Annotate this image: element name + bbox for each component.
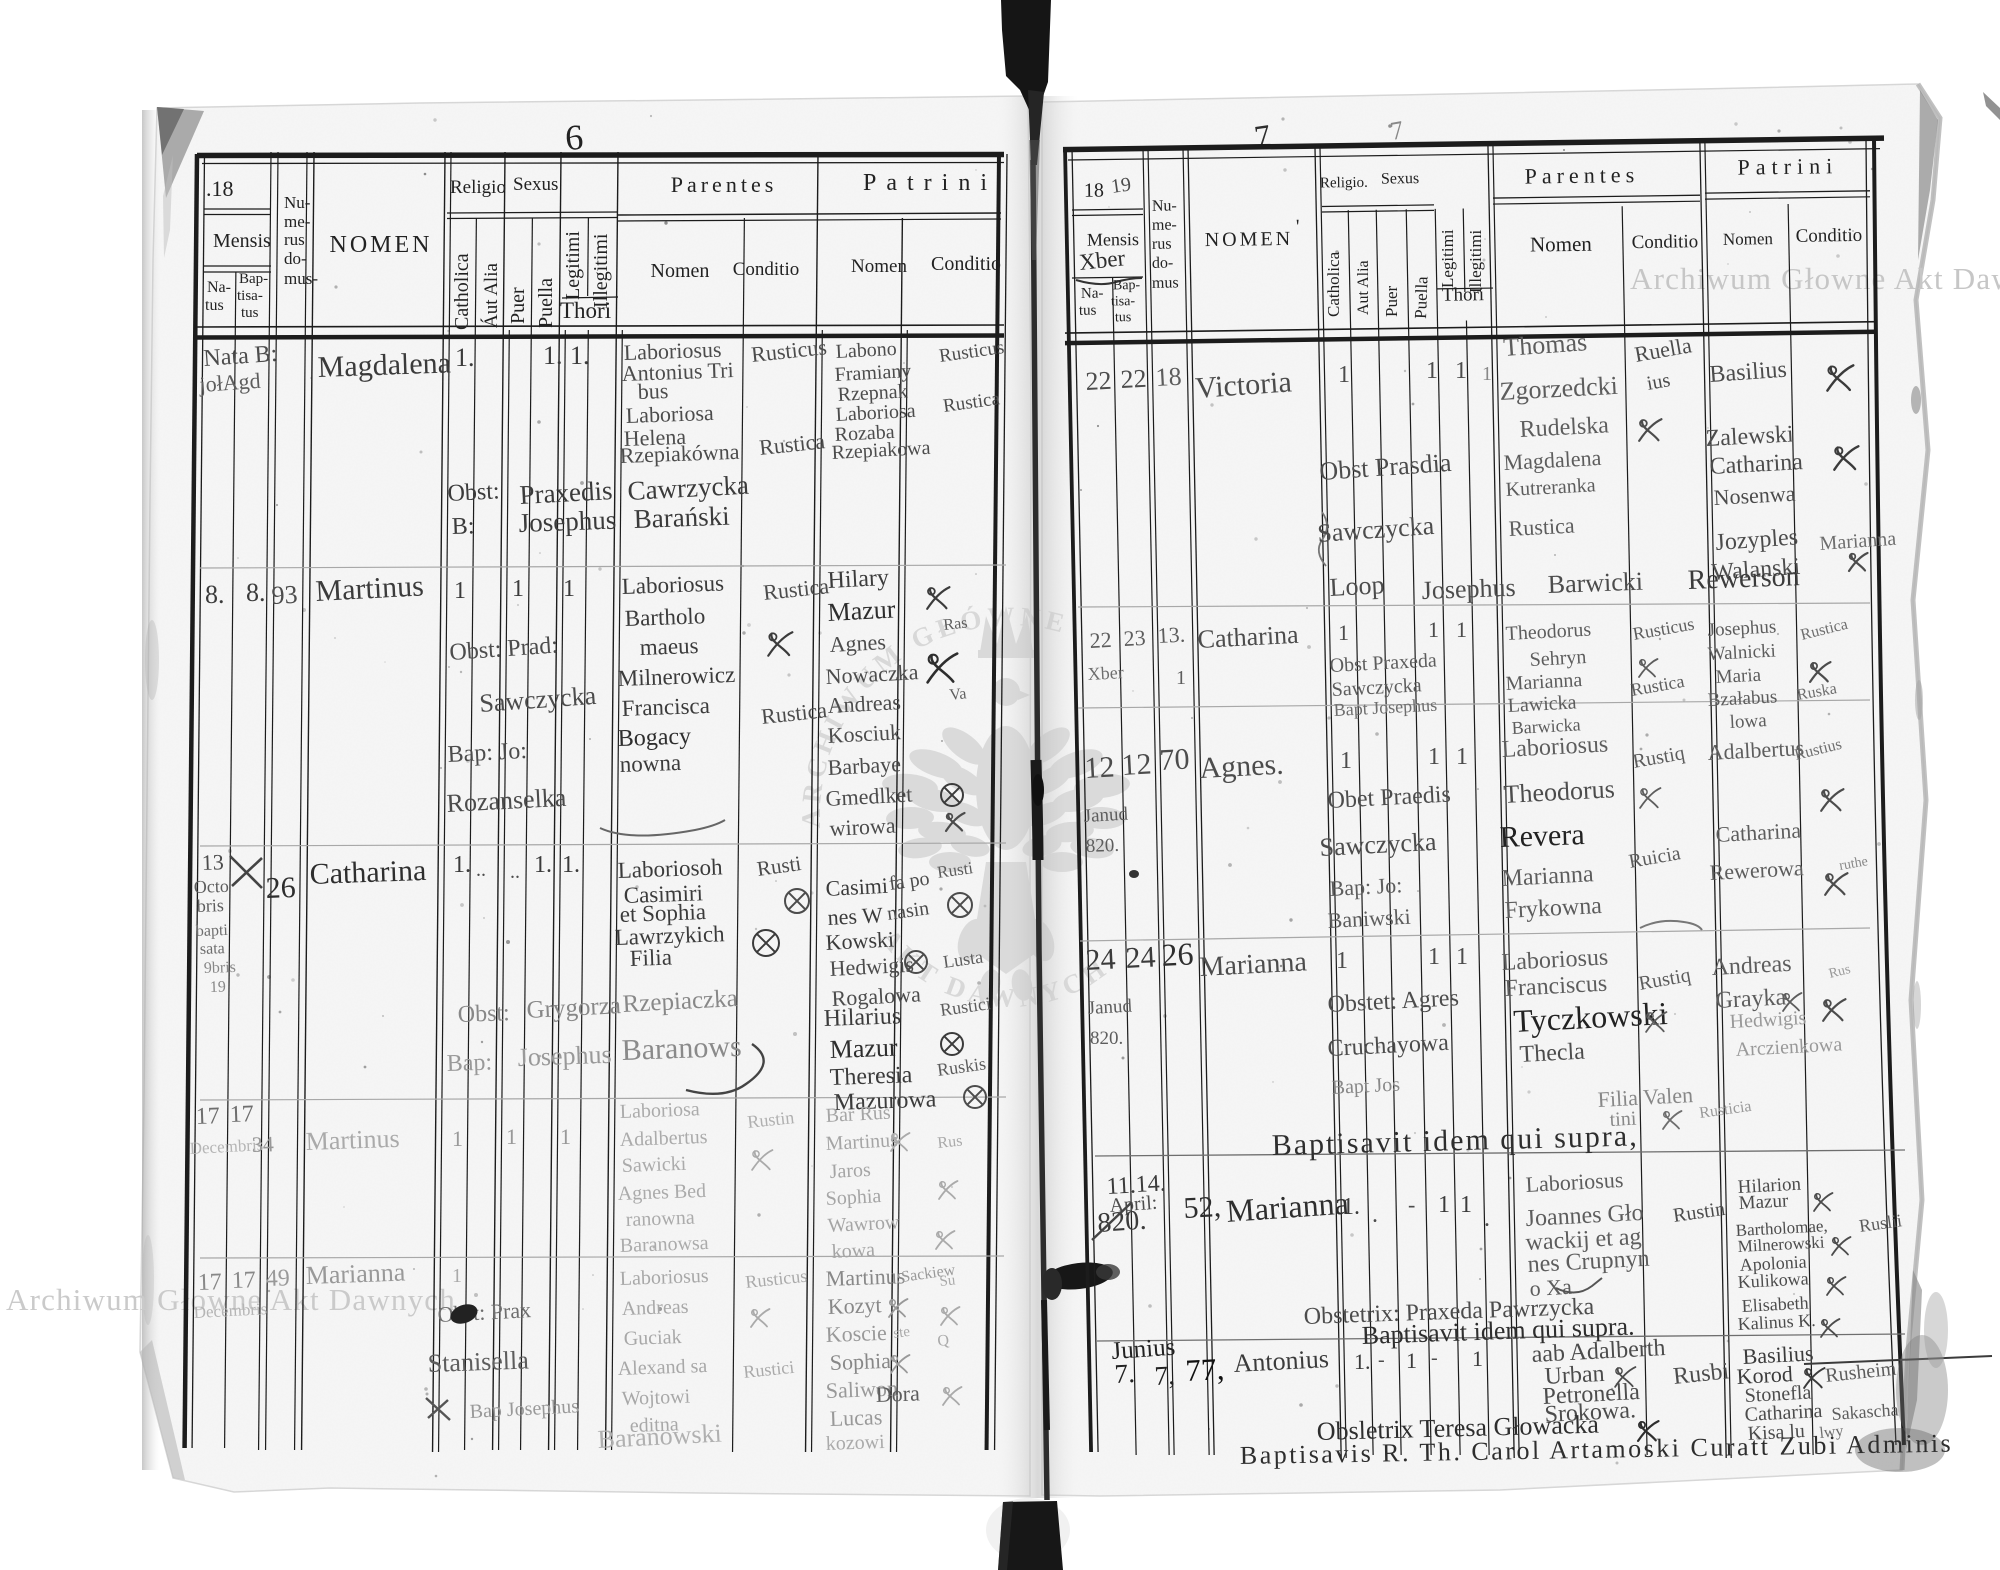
svg-text:9bris: 9bris bbox=[204, 959, 237, 977]
svg-text:1.: 1. bbox=[455, 343, 475, 372]
svg-text:Rewerson: Rewerson bbox=[1687, 561, 1800, 596]
svg-text:Nomen: Nomen bbox=[1530, 232, 1593, 257]
svg-text:kozowi: kozowi bbox=[825, 1431, 885, 1455]
svg-text:Marianna: Marianna bbox=[1501, 861, 1595, 892]
svg-text:Labono: Labono bbox=[835, 338, 897, 363]
svg-text:70: 70 bbox=[1159, 742, 1191, 777]
svg-text:13: 13 bbox=[201, 849, 224, 875]
svg-text:Theodorus: Theodorus bbox=[1505, 619, 1592, 645]
svg-text:Wawrow: Wawrow bbox=[827, 1211, 900, 1237]
svg-text:Andreas: Andreas bbox=[621, 1296, 689, 1320]
svg-text:Áut Alia: Áut Alia bbox=[480, 263, 502, 328]
svg-text:bus: bus bbox=[637, 378, 668, 404]
svg-text:26: 26 bbox=[265, 871, 296, 905]
svg-text:Conditio: Conditio bbox=[931, 253, 1001, 275]
svg-text:Barbaye: Barbaye bbox=[827, 751, 902, 780]
svg-text:1: 1 bbox=[452, 1126, 463, 1151]
svg-text:Catholica: Catholica bbox=[451, 253, 473, 330]
svg-text:tisa-: tisa- bbox=[1111, 294, 1136, 309]
svg-text:1: 1 bbox=[1482, 363, 1492, 385]
svg-text:24: 24 bbox=[1085, 942, 1117, 977]
svg-text:1: 1 bbox=[1338, 620, 1349, 645]
svg-text:Casimi: Casimi bbox=[825, 873, 889, 901]
svg-text:Bogacy: Bogacy bbox=[617, 723, 691, 752]
svg-text:Gmedlket: Gmedlket bbox=[825, 781, 913, 811]
svg-text:13.: 13. bbox=[1157, 622, 1186, 648]
svg-text:Franciscus: Franciscus bbox=[1504, 971, 1608, 1002]
svg-text:12: 12 bbox=[1121, 747, 1153, 782]
svg-text:NOMEN: NOMEN bbox=[1205, 228, 1294, 251]
svg-text:Kalinus K.: Kalinus K. bbox=[1737, 1310, 1816, 1334]
svg-text:Nowaczka: Nowaczka bbox=[825, 659, 919, 689]
svg-text:Religio: Religio bbox=[450, 177, 506, 198]
svg-text:Conditio: Conditio bbox=[1632, 231, 1699, 253]
svg-text:Josephus: Josephus bbox=[1421, 573, 1516, 605]
svg-text:Patrini: Patrini bbox=[863, 170, 997, 196]
svg-text:1: 1 bbox=[1472, 1346, 1483, 1371]
svg-text:Legitimi: Legitimi bbox=[562, 231, 584, 300]
svg-text:23: 23 bbox=[1123, 625, 1146, 651]
svg-text:1: 1 bbox=[1428, 944, 1440, 970]
svg-text:Jaros: Jaros bbox=[829, 1159, 871, 1183]
svg-text:Josephus: Josephus bbox=[518, 505, 617, 538]
svg-text:Rus: Rus bbox=[937, 1132, 964, 1152]
svg-text:.: . bbox=[1484, 1206, 1490, 1232]
svg-text:Puer: Puer bbox=[1382, 286, 1401, 318]
svg-text:Baniwski: Baniwski bbox=[1327, 904, 1411, 933]
svg-text:Mazur: Mazur bbox=[827, 594, 897, 627]
svg-text:Bar Rus: Bar Rus bbox=[825, 1102, 891, 1127]
svg-text:-: - bbox=[1378, 1349, 1385, 1371]
svg-text:nowna: nowna bbox=[619, 750, 681, 777]
svg-text:Revera: Revera bbox=[1499, 818, 1585, 854]
svg-text:Rzepiakówna: Rzepiakówna bbox=[619, 439, 740, 468]
svg-text:1: 1 bbox=[1338, 362, 1350, 388]
svg-text:Ras: Ras bbox=[943, 615, 969, 634]
svg-text:Victoria: Victoria bbox=[1194, 365, 1293, 405]
svg-text:bapti: bapti bbox=[196, 922, 229, 940]
svg-text:8.: 8. bbox=[246, 578, 266, 607]
svg-text:Rudelska: Rudelska bbox=[1519, 412, 1610, 443]
svg-text:tus: tus bbox=[241, 305, 259, 321]
svg-text:Filia Valen: Filia Valen bbox=[1597, 1082, 1694, 1112]
svg-text:1: 1 bbox=[1406, 1348, 1417, 1373]
svg-text:Nosenwa: Nosenwa bbox=[1713, 481, 1796, 510]
svg-text:17: 17 bbox=[229, 1101, 254, 1128]
svg-text:Aut Alia: Aut Alia bbox=[1355, 260, 1372, 315]
svg-text:jołAgd: jołAgd bbox=[198, 368, 262, 397]
svg-text:1: 1 bbox=[1456, 617, 1467, 642]
svg-text:Agnes.: Agnes. bbox=[1199, 748, 1285, 785]
svg-text:Josephus: Josephus bbox=[1707, 616, 1777, 641]
svg-text:Stanisella: Stanisella bbox=[427, 1345, 530, 1378]
svg-text:Martinus: Martinus bbox=[305, 1124, 400, 1156]
svg-text:Marianna: Marianna bbox=[305, 1258, 406, 1290]
svg-text:do-: do- bbox=[1152, 255, 1174, 272]
svg-text:Va: Va bbox=[949, 685, 968, 704]
svg-text:maeus: maeus bbox=[639, 633, 699, 660]
svg-text:Parentes: Parentes bbox=[671, 172, 778, 197]
svg-text:1: 1 bbox=[1460, 1192, 1472, 1218]
svg-text:1: 1 bbox=[1340, 748, 1352, 774]
svg-text:1: 1 bbox=[1455, 358, 1467, 384]
svg-text:editna: editna bbox=[629, 1413, 679, 1437]
svg-text:Thecla: Thecla bbox=[1519, 1039, 1586, 1068]
svg-text:Bzałabus: Bzałabus bbox=[1707, 686, 1778, 711]
svg-text:12: 12 bbox=[1084, 750, 1116, 785]
svg-text:820.: 820. bbox=[1085, 835, 1119, 857]
svg-text:Theresia: Theresia bbox=[829, 1062, 913, 1091]
svg-text:Bapt Jos: Bapt Jos bbox=[1331, 1073, 1401, 1099]
svg-text:Mazur: Mazur bbox=[829, 1033, 898, 1064]
svg-text:Laboriosus: Laboriosus bbox=[1525, 1167, 1624, 1197]
svg-text:B:: B: bbox=[451, 513, 475, 540]
svg-text:Na-: Na- bbox=[207, 279, 231, 296]
svg-text:Xber: Xber bbox=[1078, 245, 1127, 275]
svg-text:820.: 820. bbox=[1090, 1028, 1123, 1049]
svg-text:Parentes: Parentes bbox=[1524, 162, 1639, 189]
svg-text:do-: do- bbox=[284, 249, 307, 268]
svg-text:Bap:: Bap: bbox=[446, 1049, 492, 1077]
svg-text:Sawicki: Sawicki bbox=[621, 1153, 687, 1177]
svg-text:Kowski: Kowski bbox=[825, 926, 895, 955]
svg-text:Zgorzedcki: Zgorzedcki bbox=[1499, 371, 1619, 406]
svg-text:Hedwigis: Hedwigis bbox=[829, 952, 915, 981]
svg-text:Barański: Barański bbox=[633, 501, 730, 534]
svg-text:19: 19 bbox=[210, 978, 227, 996]
svg-text:Patrini: Patrini bbox=[1737, 153, 1838, 179]
svg-text:Magdalena: Magdalena bbox=[317, 346, 451, 384]
svg-text:Catharina: Catharina bbox=[309, 854, 427, 891]
svg-text:ranowna: ranowna bbox=[625, 1207, 695, 1231]
svg-text:1.: 1. bbox=[453, 852, 471, 878]
svg-text:Catharina: Catharina bbox=[1715, 818, 1802, 847]
svg-text:lowa: lowa bbox=[1729, 710, 1768, 733]
svg-text:Milnerowicz: Milnerowicz bbox=[617, 662, 735, 691]
svg-text:Agnes: Agnes bbox=[829, 629, 886, 657]
svg-text:1: 1 bbox=[1456, 944, 1468, 970]
svg-text:7,: 7, bbox=[1154, 1360, 1176, 1391]
svg-text:1: 1 bbox=[1428, 744, 1440, 770]
svg-text:26: 26 bbox=[1160, 935, 1194, 973]
svg-text:Kosciuk: Kosciuk bbox=[827, 719, 902, 748]
svg-text:Rustica: Rustica bbox=[1508, 513, 1575, 541]
svg-text:Nomen: Nomen bbox=[851, 256, 907, 277]
svg-text:Mazur: Mazur bbox=[1738, 1190, 1789, 1214]
svg-text:Guciak: Guciak bbox=[623, 1326, 681, 1350]
svg-text:Obst: Prax: Obst: Prax bbox=[437, 1297, 532, 1327]
svg-text:19: 19 bbox=[1110, 173, 1133, 198]
svg-text:Obst:: Obst: bbox=[457, 1000, 510, 1028]
svg-text:Baranowsa: Baranowsa bbox=[619, 1232, 709, 1257]
svg-text:1.: 1. bbox=[1342, 1194, 1360, 1220]
svg-text:tisa-: tisa- bbox=[237, 288, 263, 304]
svg-text:1: 1 bbox=[1336, 948, 1348, 974]
svg-text:Adalbertus: Adalbertus bbox=[1707, 735, 1805, 765]
svg-text:1.: 1. bbox=[570, 341, 590, 370]
svg-text:Walnicki: Walnicki bbox=[1707, 640, 1776, 665]
svg-text:Nu-: Nu- bbox=[284, 193, 311, 212]
svg-text:1: 1 bbox=[512, 576, 524, 602]
svg-text:Grygorza: Grygorza bbox=[526, 992, 622, 1024]
svg-text:Marianna: Marianna bbox=[1199, 946, 1308, 983]
svg-text:Illegitimi: Illegitimi bbox=[590, 233, 612, 308]
svg-text:ste: ste bbox=[892, 1324, 911, 1342]
svg-text:wirowa: wirowa bbox=[829, 813, 896, 841]
svg-text:Loop: Loop bbox=[1329, 570, 1385, 602]
svg-text:Janud: Janud bbox=[1087, 996, 1133, 1019]
svg-text:24: 24 bbox=[1125, 940, 1157, 975]
svg-text:Catholica: Catholica bbox=[1324, 251, 1343, 317]
svg-text:Kutreranka: Kutreranka bbox=[1505, 474, 1596, 501]
svg-text:1: 1 bbox=[1428, 617, 1439, 642]
svg-text:ius: ius bbox=[1645, 369, 1672, 395]
svg-text:Sexus: Sexus bbox=[1381, 170, 1419, 188]
svg-text:1: 1 bbox=[1438, 1192, 1450, 1218]
svg-text:Nata B:: Nata B: bbox=[203, 341, 279, 372]
svg-text:Bartholo: Bartholo bbox=[624, 603, 705, 631]
svg-text:6: 6 bbox=[564, 117, 585, 158]
svg-text:Archiwum Głowne Akt Dawnych: Archiwum Głowne Akt Dawnych bbox=[1630, 261, 2000, 296]
svg-text:Laboriosus: Laboriosus bbox=[621, 570, 724, 599]
svg-text:rus: rus bbox=[1152, 236, 1172, 253]
svg-text:34: 34 bbox=[251, 1131, 274, 1157]
svg-text:.: . bbox=[1372, 1202, 1378, 1228]
svg-text:Conditio: Conditio bbox=[733, 259, 800, 280]
svg-text:Nu-: Nu- bbox=[1152, 198, 1177, 215]
svg-text:Wojtowi: Wojtowi bbox=[621, 1386, 691, 1410]
svg-text:1.: 1. bbox=[562, 852, 580, 878]
svg-text:1: 1 bbox=[506, 1124, 517, 1149]
svg-text:..: .. bbox=[476, 859, 486, 881]
svg-text:Janud: Janud bbox=[1083, 804, 1129, 827]
svg-text:Bap-: Bap- bbox=[239, 271, 268, 287]
svg-text:kowa: kowa bbox=[831, 1239, 876, 1263]
svg-text:Thori: Thori bbox=[560, 298, 611, 323]
svg-text:7.: 7. bbox=[1114, 1358, 1136, 1389]
svg-text:22: 22 bbox=[1120, 364, 1147, 394]
svg-text:Baranows: Baranows bbox=[621, 1030, 742, 1067]
svg-text:Filia: Filia bbox=[629, 945, 672, 971]
svg-text:Sophia: Sophia bbox=[825, 1185, 882, 1210]
svg-text:1.: 1. bbox=[543, 341, 563, 370]
svg-text:Thori: Thori bbox=[1442, 284, 1485, 306]
svg-text:Barwicki: Barwicki bbox=[1547, 567, 1643, 599]
svg-text:1: 1 bbox=[560, 1124, 571, 1149]
svg-text:Decembris: Decembris bbox=[193, 1299, 268, 1322]
svg-text:8.: 8. bbox=[205, 580, 225, 609]
svg-text:Magdalena: Magdalena bbox=[1503, 445, 1602, 475]
svg-text:18: 18 bbox=[1155, 362, 1182, 392]
svg-text:Agnes Bed: Agnes Bed bbox=[617, 1180, 706, 1205]
svg-text:mus-: mus- bbox=[284, 269, 318, 288]
svg-text:Puer: Puer bbox=[507, 287, 529, 324]
svg-text:Obst:: Obst: bbox=[447, 478, 500, 507]
svg-text:Lucas: Lucas bbox=[829, 1404, 882, 1431]
svg-text:Legitimi: Legitimi bbox=[1438, 229, 1457, 288]
svg-text:52,: 52, bbox=[1183, 1190, 1222, 1225]
svg-text:Q: Q bbox=[937, 1332, 951, 1350]
svg-text:1: 1 bbox=[454, 578, 466, 604]
svg-text:1.: 1. bbox=[534, 852, 552, 878]
svg-text:me-: me- bbox=[284, 212, 311, 231]
svg-text:1.: 1. bbox=[1354, 1349, 1371, 1374]
svg-text:Catharina: Catharina bbox=[1709, 449, 1804, 480]
svg-text:Bap: Jo:: Bap: Jo: bbox=[447, 738, 528, 768]
svg-text:tus: tus bbox=[205, 297, 224, 314]
svg-text:Religio.: Religio. bbox=[1320, 175, 1368, 192]
svg-text:Nomen: Nomen bbox=[1723, 229, 1774, 249]
svg-text:Andreas: Andreas bbox=[1711, 951, 1792, 981]
svg-text:rus: rus bbox=[284, 230, 305, 249]
svg-text:Francisca: Francisca bbox=[621, 693, 710, 721]
svg-text:Na-: Na- bbox=[1081, 286, 1104, 302]
svg-text:tus: tus bbox=[1115, 310, 1132, 325]
svg-text:Su: Su bbox=[939, 1272, 957, 1290]
svg-text:sata: sata bbox=[200, 940, 225, 958]
svg-text:Theodorus: Theodorus bbox=[1503, 774, 1616, 809]
svg-text:1: 1 bbox=[1176, 667, 1186, 689]
svg-text:Octo: Octo bbox=[193, 876, 229, 897]
svg-text:Dora: Dora bbox=[875, 1380, 920, 1407]
svg-text:-: - bbox=[1431, 1347, 1438, 1369]
svg-text:Sehryn: Sehryn bbox=[1529, 646, 1587, 671]
svg-text:Sexus: Sexus bbox=[513, 174, 558, 195]
svg-text:1: 1 bbox=[452, 1265, 462, 1287]
svg-text:18: 18 bbox=[1084, 180, 1104, 202]
svg-text:Hilarius: Hilarius bbox=[823, 1003, 901, 1032]
svg-text:17: 17 bbox=[197, 1269, 222, 1296]
svg-text:Xber: Xber bbox=[1087, 662, 1124, 684]
svg-text:820.: 820. bbox=[1096, 1205, 1147, 1239]
svg-text:17: 17 bbox=[231, 1267, 256, 1294]
svg-text:Alexand sa: Alexand sa bbox=[617, 1355, 707, 1380]
svg-text:Catharina: Catharina bbox=[1197, 620, 1300, 654]
svg-text:77,: 77, bbox=[1185, 1351, 1226, 1388]
svg-text:Bap: Jo:: Bap: Jo: bbox=[1329, 872, 1403, 901]
svg-text:tus: tus bbox=[1079, 303, 1097, 319]
svg-text:22: 22 bbox=[1089, 627, 1112, 653]
svg-text:Josephus: Josephus bbox=[517, 1040, 612, 1072]
svg-text:Puella: Puella bbox=[535, 278, 557, 328]
svg-text:Adalbertus: Adalbertus bbox=[619, 1126, 708, 1151]
svg-text:1: 1 bbox=[1456, 744, 1468, 770]
svg-text:.18: .18 bbox=[206, 176, 234, 201]
svg-text:Kozyt: Kozyt bbox=[827, 1292, 882, 1319]
svg-text:': ' bbox=[1296, 216, 1300, 238]
svg-text:nes W: nes W bbox=[827, 902, 884, 930]
svg-text:Hedwigis: Hedwigis bbox=[1729, 1007, 1807, 1033]
svg-text:93: 93 bbox=[271, 580, 298, 610]
svg-text:Antonius: Antonius bbox=[1233, 1344, 1330, 1378]
svg-text:Cawrzycka: Cawrzycka bbox=[627, 470, 750, 506]
svg-text:Hilary: Hilary bbox=[827, 565, 890, 594]
svg-text:Basilius: Basilius bbox=[1709, 357, 1788, 388]
svg-text:Sophia: Sophia bbox=[829, 1348, 891, 1375]
svg-text:Martinus: Martinus bbox=[315, 569, 425, 608]
svg-text:17: 17 bbox=[195, 1103, 220, 1130]
svg-text:22: 22 bbox=[1085, 366, 1112, 396]
svg-text:Andreas: Andreas bbox=[827, 689, 902, 718]
svg-text:Mensis: Mensis bbox=[213, 230, 271, 252]
svg-text:1: 1 bbox=[563, 576, 575, 602]
svg-text:Maria: Maria bbox=[1715, 665, 1762, 688]
svg-text:Laboriosus: Laboriosus bbox=[619, 1265, 709, 1290]
svg-text:Koscie: Koscie bbox=[825, 1320, 887, 1347]
svg-text:Puella: Puella bbox=[1411, 276, 1431, 320]
svg-text:Rewerowa: Rewerowa bbox=[1709, 855, 1804, 885]
svg-text:Martinus: Martinus bbox=[825, 1263, 905, 1291]
svg-text:bris: bris bbox=[196, 895, 224, 916]
svg-text:Kulikowa: Kulikowa bbox=[1737, 1268, 1809, 1292]
svg-text:..: .. bbox=[510, 861, 520, 883]
svg-text:Laboriosa: Laboriosa bbox=[619, 1098, 700, 1123]
svg-text:me-: me- bbox=[1152, 217, 1177, 234]
svg-text:1: 1 bbox=[1426, 358, 1438, 384]
svg-text:Frykowna: Frykowna bbox=[1504, 893, 1603, 924]
svg-text:49: 49 bbox=[265, 1265, 290, 1292]
svg-text:Nomen: Nomen bbox=[651, 260, 710, 282]
svg-text:Sawczycka: Sawczycka bbox=[1319, 827, 1438, 862]
svg-text:Zalewski: Zalewski bbox=[1705, 421, 1795, 452]
svg-text:Lawicka: Lawicka bbox=[1507, 691, 1577, 717]
svg-text:mus: mus bbox=[1152, 274, 1179, 291]
svg-text:Bap-: Bap- bbox=[1113, 278, 1141, 293]
svg-text:Conditio: Conditio bbox=[1796, 225, 1863, 247]
svg-text:-: - bbox=[1408, 1192, 1415, 1217]
svg-text:Laboriosoh: Laboriosoh bbox=[617, 854, 723, 883]
svg-text:NOMEN: NOMEN bbox=[330, 232, 433, 258]
svg-text:Martinus: Martinus bbox=[825, 1129, 898, 1155]
svg-text:Thomas: Thomas bbox=[1502, 327, 1588, 362]
